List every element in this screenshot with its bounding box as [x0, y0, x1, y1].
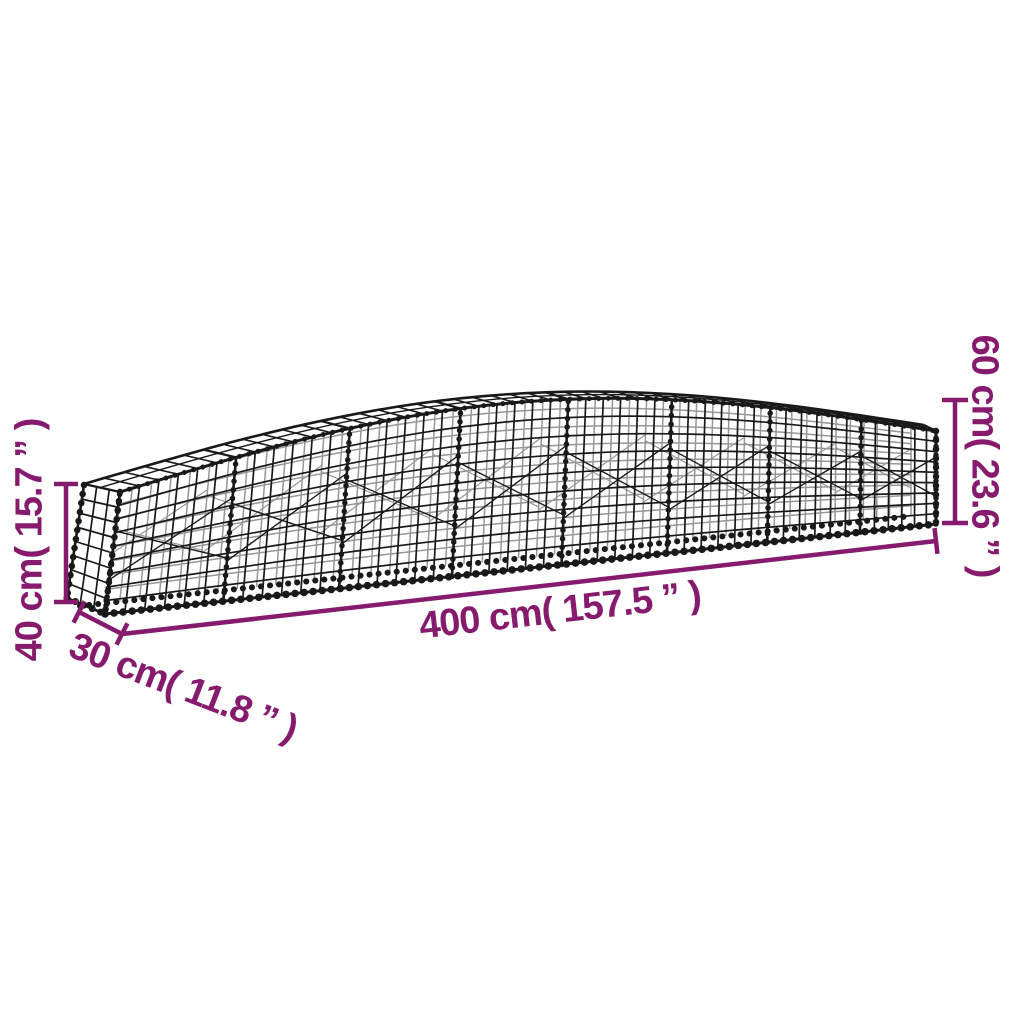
dimension-label-end-height: 40 cm( 15.7 ” )	[9, 419, 52, 662]
product-dimension-diagram: 40 cm( 15.7 ” ) 60 cm( 23.6 ” ) 400 cm( …	[0, 0, 1024, 1024]
gabion-basket-drawing	[0, 0, 1024, 1024]
dimension-label-arch-height: 60 cm( 23.6 ” )	[963, 335, 1006, 578]
